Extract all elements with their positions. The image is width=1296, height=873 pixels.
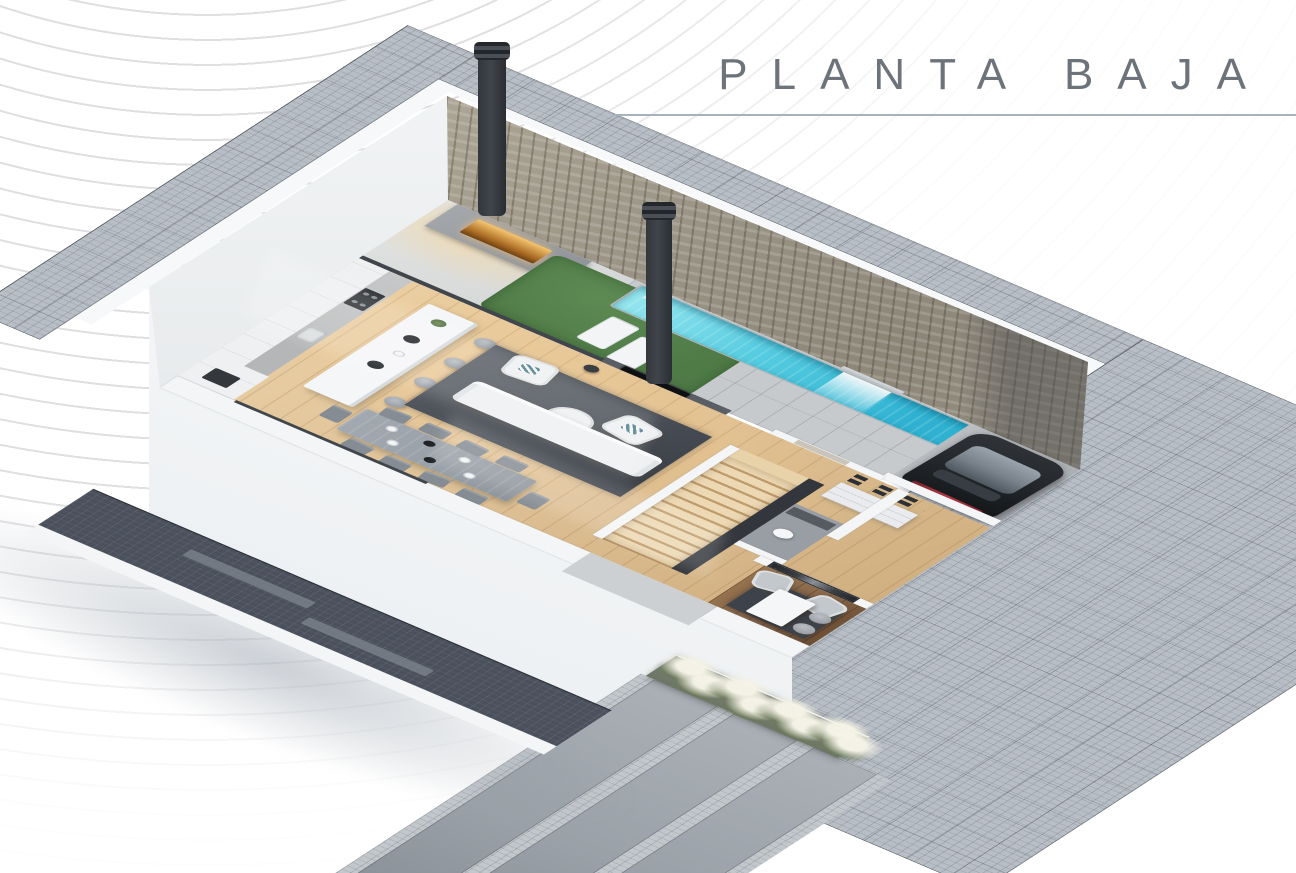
page-title: PLANTA BAJA (718, 50, 1270, 100)
render-stage: PLANTA BAJA (0, 0, 1296, 873)
dinner-plate (383, 425, 400, 434)
dinner-plate (384, 439, 401, 448)
chimney-fireplace (646, 206, 672, 384)
chimney-cap (474, 42, 510, 60)
car-windshield (941, 444, 1045, 496)
chimney-cap (642, 202, 676, 220)
dinner-plate (421, 439, 438, 448)
title-divider (614, 114, 1296, 116)
chimney-outdoor-kitchen (478, 46, 506, 216)
